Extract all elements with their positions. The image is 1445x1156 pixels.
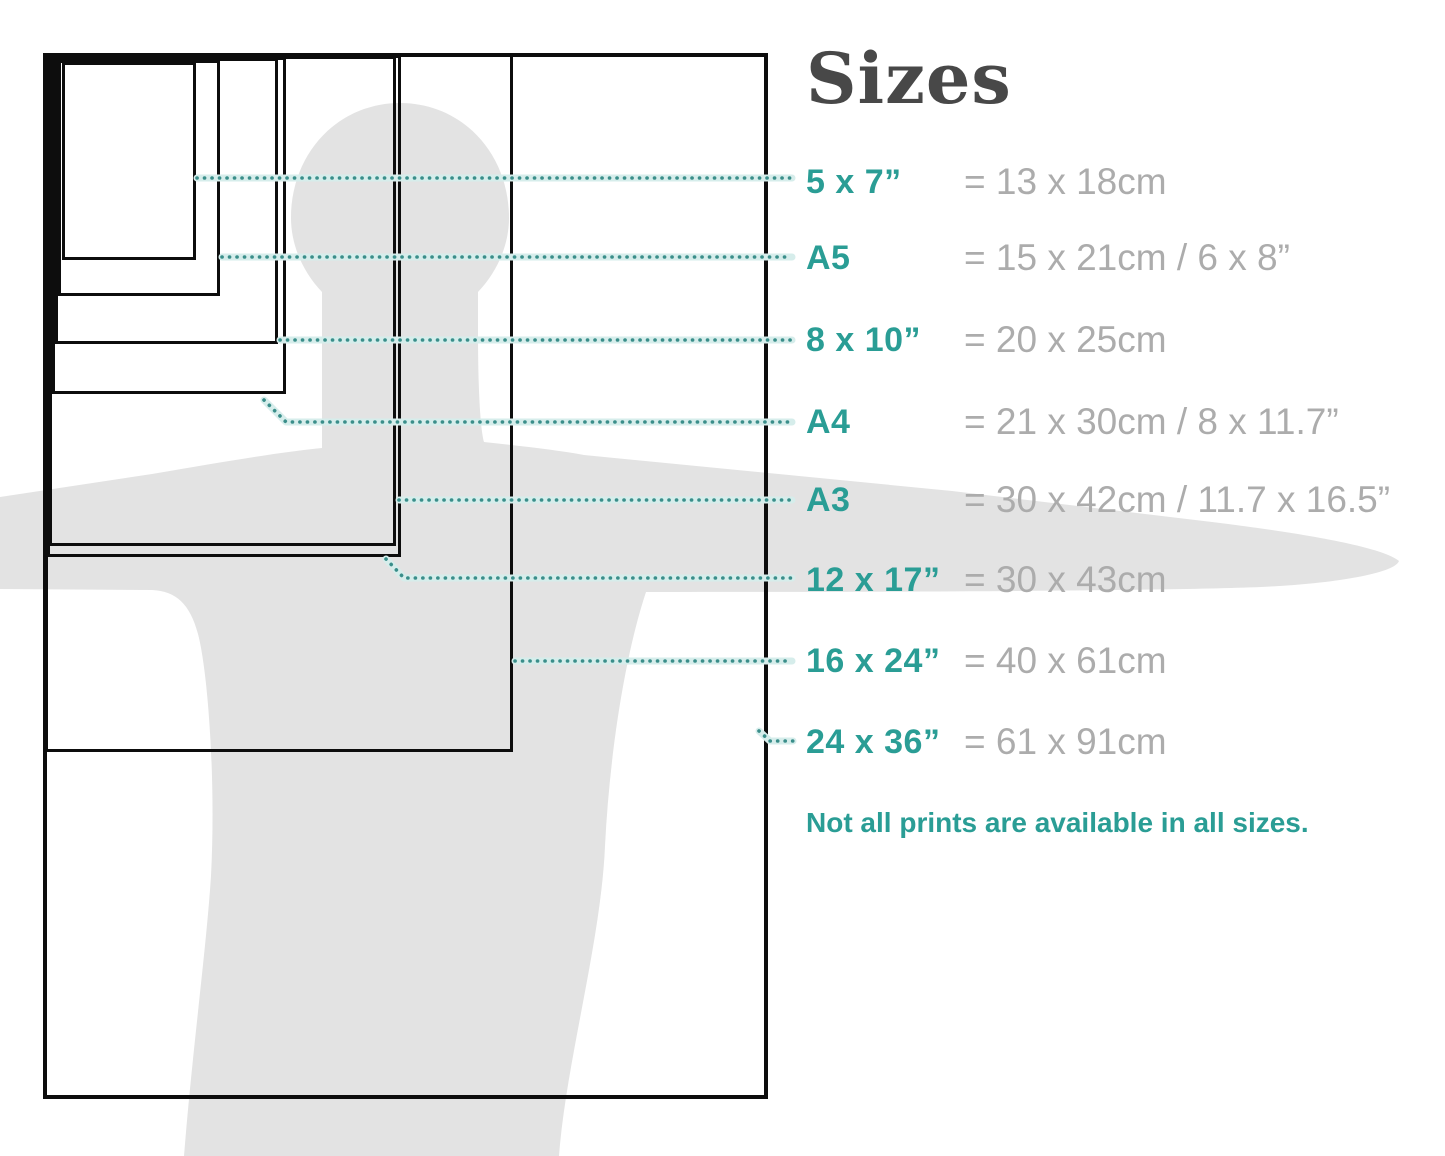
size-row-12x17: 12 x 17”= 30 x 43cm: [806, 554, 1445, 606]
size-metric-a4: = 21 x 30cm / 8 x 11.7”: [964, 396, 1339, 448]
size-box-a4: [52, 57, 286, 394]
leader-dots-12x17: [386, 559, 792, 578]
size-label-24x36: 24 x 36”: [806, 716, 940, 768]
size-metric-24x36: = 61 x 91cm: [964, 716, 1167, 768]
size-box-12x17: [47, 55, 401, 557]
size-metric-8x10: = 20 x 25cm: [964, 314, 1167, 366]
size-label-a4: A4: [806, 396, 850, 448]
size-box-a5: [58, 60, 220, 296]
size-row-8x10: 8 x 10”= 20 x 25cm: [806, 314, 1445, 366]
size-metric-16x24: = 40 x 61cm: [964, 635, 1167, 687]
leader-halo-a4: [264, 400, 792, 422]
size-row-a3: A3= 30 x 42cm / 11.7 x 16.5”: [806, 474, 1445, 526]
leader-dots-24x36: [759, 731, 793, 741]
print-size-guide: Sizes 5 x 7”= 13 x 18cmA5= 15 x 21cm / 6…: [0, 0, 1445, 1156]
size-label-a5: A5: [806, 232, 850, 284]
size-box-16x24: [45, 54, 513, 752]
size-label-16x24: 16 x 24”: [806, 635, 940, 687]
size-row-16x24: 16 x 24”= 40 x 61cm: [806, 635, 1445, 687]
size-box-a3: [49, 56, 396, 546]
size-box-8x10: [55, 58, 278, 344]
size-metric-a3: = 30 x 42cm / 11.7 x 16.5”: [964, 474, 1390, 526]
size-label-12x17: 12 x 17”: [806, 554, 940, 606]
size-label-a3: A3: [806, 474, 850, 526]
size-row-24x36: 24 x 36”= 61 x 91cm: [806, 716, 1445, 768]
size-row-a5: A5= 15 x 21cm / 6 x 8”: [806, 232, 1445, 284]
size-metric-5x7: = 13 x 18cm: [964, 156, 1167, 208]
size-metric-12x17: = 30 x 43cm: [964, 554, 1167, 606]
size-label-5x7: 5 x 7”: [806, 156, 902, 208]
availability-note: Not all prints are available in all size…: [806, 806, 1309, 840]
leader-dots-a4: [264, 400, 792, 422]
size-box-24x36: [43, 53, 768, 1099]
size-metric-a5: = 15 x 21cm / 6 x 8”: [964, 232, 1290, 284]
size-row-5x7: 5 x 7”= 13 x 18cm: [806, 156, 1445, 208]
size-box-5x7: [62, 62, 196, 260]
size-row-a4: A4= 21 x 30cm / 8 x 11.7”: [806, 396, 1445, 448]
leader-halo-24x36: [759, 731, 793, 741]
page-title: Sizes: [806, 44, 1012, 114]
size-label-8x10: 8 x 10”: [806, 314, 921, 366]
leader-halo-12x17: [386, 559, 792, 578]
